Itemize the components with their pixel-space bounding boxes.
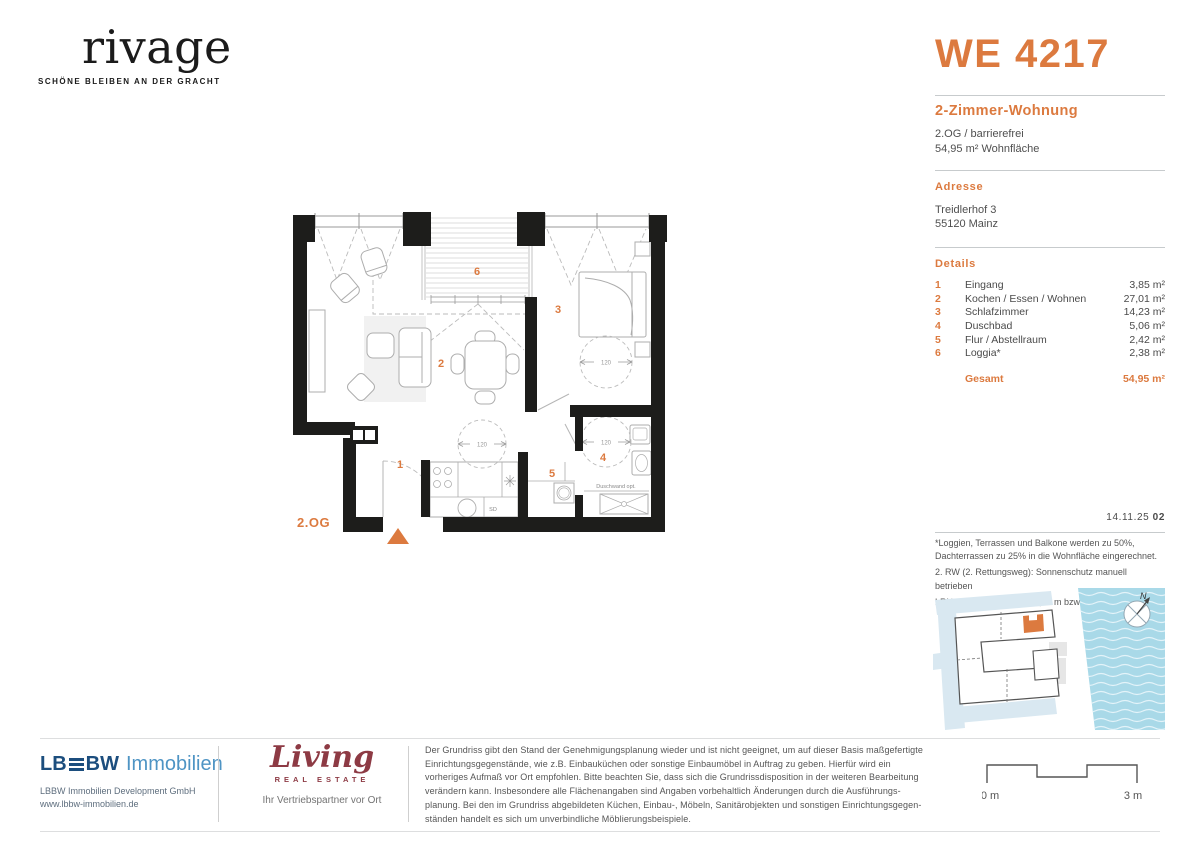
disclaimer-line: verändern kann. Insbesondere alle Fläche… bbox=[425, 785, 915, 799]
room-area: 14,23 m² bbox=[1124, 306, 1165, 320]
site-map: N bbox=[933, 588, 1165, 730]
divider-line bbox=[935, 247, 1165, 248]
scale-bar: 0 m 3 m bbox=[982, 757, 1142, 805]
room-area: 3,85 m² bbox=[1129, 279, 1165, 293]
sideboard bbox=[309, 310, 325, 392]
room-table: 1 Eingang 3,85 m² 2 Kochen / Essen / Woh… bbox=[935, 279, 1165, 361]
room-number: 3 bbox=[935, 306, 965, 320]
plan-room-6: 6 bbox=[474, 266, 480, 278]
room-name: Loggia* bbox=[965, 347, 1129, 361]
room-area: 27,01 m² bbox=[1124, 293, 1165, 307]
plan-room-3: 3 bbox=[555, 304, 561, 316]
divider-line bbox=[935, 95, 1165, 96]
room-number: 2 bbox=[935, 293, 965, 307]
room-name: Kochen / Essen / Wohnen bbox=[965, 293, 1124, 307]
table-row: 6 Loggia* 2,38 m² bbox=[935, 347, 1165, 361]
plan-room-5: 5 bbox=[549, 468, 555, 480]
table-row: 4 Duschbad 5,06 m² bbox=[935, 320, 1165, 334]
address-heading: Adresse bbox=[935, 181, 1165, 193]
room-number: 5 bbox=[935, 334, 965, 348]
total-row: Gesamt 54,95 m² bbox=[935, 373, 1165, 385]
disclaimer-line: ständen handelt es sich um unverbindlich… bbox=[425, 813, 915, 827]
footer-divider bbox=[218, 746, 219, 822]
living-subtitle: REAL ESTATE bbox=[238, 775, 406, 784]
water bbox=[1071, 588, 1165, 730]
plan-room-2: 2 bbox=[438, 358, 444, 370]
lbbw-bars-icon bbox=[69, 756, 84, 772]
kitchen-sink bbox=[458, 499, 476, 517]
turning-circle-dim: 120 bbox=[601, 441, 612, 447]
plan-date: 14.11.25 02 bbox=[935, 512, 1165, 523]
room-name: Duschbad bbox=[965, 320, 1129, 334]
table-row: 5 Flur / Abstellraum 2,42 m² bbox=[935, 334, 1165, 348]
disclaimer-text: Der Grundriss gibt den Stand der Genehmi… bbox=[425, 744, 915, 826]
lbbw-website[interactable]: www.lbbw-immobilien.de bbox=[40, 798, 223, 811]
disclaimer-line: Einrichtungsgegenstände, wie z.B. Einbau… bbox=[425, 758, 915, 772]
disclaimer-line: vorheriges Aufmaß vor Ort empfohlen. Bit… bbox=[425, 771, 915, 785]
washing-machine bbox=[554, 483, 574, 503]
unit-floor: 2.OG / barrierefrei bbox=[935, 127, 1165, 142]
unit-living-area: 54,95 m² Wohnfläche bbox=[935, 142, 1165, 157]
address-city: 55120 Mainz bbox=[935, 217, 1165, 232]
entrance-marker bbox=[387, 528, 409, 544]
table-row: 3 Schlafzimmer 14,23 m² bbox=[935, 306, 1165, 320]
lbbw-lb: LB bbox=[40, 753, 67, 776]
total-label: Gesamt bbox=[965, 373, 1123, 385]
turning-circle-dim: 120 bbox=[601, 361, 612, 367]
plan-floor-label: 2.OG bbox=[297, 515, 330, 530]
room-number: 4 bbox=[935, 320, 965, 334]
table-row: 1 Eingang 3,85 m² bbox=[935, 279, 1165, 293]
footnote-loggia: *Loggien, Terrassen und Balkone werden z… bbox=[935, 537, 1165, 563]
floor-plan: Duschwand opt. SD 120 120 120 1 2 3 4 5 … bbox=[288, 200, 690, 548]
footer-bottom-rule bbox=[40, 831, 1160, 832]
lbbw-company: LBBW Immobilien Development GmbH bbox=[40, 785, 223, 798]
footer-top-rule bbox=[40, 738, 1160, 739]
loggia-railing bbox=[422, 214, 532, 300]
rivage-logo: rivage bbox=[82, 20, 232, 74]
turning-circle-dim: 120 bbox=[477, 443, 488, 449]
living-tagline: Ihr Vertriebspartner vor Ort bbox=[238, 795, 406, 806]
room-number: 1 bbox=[935, 279, 965, 293]
shower bbox=[600, 494, 648, 514]
room-area: 5,06 m² bbox=[1129, 320, 1165, 334]
room-area: 2,42 m² bbox=[1129, 334, 1165, 348]
room-name: Schlafzimmer bbox=[965, 306, 1124, 320]
lounge-chair bbox=[360, 246, 389, 278]
floorplan-sheet: rivage SCHÖNE BLEIBEN AN DER GRACHT WE 4… bbox=[0, 0, 1200, 848]
lbbw-bw: BW bbox=[86, 753, 119, 776]
unit-type: 2-Zimmer-Wohnung bbox=[935, 103, 1165, 119]
plan-room-1: 1 bbox=[397, 459, 403, 471]
bed bbox=[579, 272, 646, 337]
living-logo-block: Living REAL ESTATE Ihr Vertriebspartner … bbox=[238, 741, 406, 806]
address-street: Treidlerhof 3 bbox=[935, 203, 1165, 218]
details-heading: Details bbox=[935, 258, 1165, 270]
unit-code: WE 4217 bbox=[935, 32, 1110, 77]
scale-end-label: 3 m bbox=[1124, 790, 1142, 802]
nightstand bbox=[635, 342, 650, 357]
unit-marker-notch bbox=[1029, 615, 1037, 621]
rivage-tagline: SCHÖNE BLEIBEN AN DER GRACHT bbox=[38, 77, 221, 86]
building-block bbox=[1033, 649, 1059, 680]
divider-line bbox=[935, 532, 1165, 533]
north-label: N bbox=[1140, 591, 1147, 601]
lbbw-immobilien: Immobilien bbox=[126, 753, 223, 776]
total-area: 54,95 m² bbox=[1123, 373, 1165, 385]
room-area: 2,38 m² bbox=[1129, 347, 1165, 361]
sofa bbox=[399, 328, 431, 387]
table-row: 2 Kochen / Essen / Wohnen 27,01 m² bbox=[935, 293, 1165, 307]
armchair bbox=[367, 333, 394, 358]
plan-room-4: 4 bbox=[600, 452, 607, 464]
disclaimer-line: Der Grundriss gibt den Stand der Genehmi… bbox=[425, 744, 915, 758]
room-name: Flur / Abstellraum bbox=[965, 334, 1129, 348]
dining-table bbox=[465, 341, 506, 389]
scale-start-label: 0 m bbox=[982, 790, 999, 802]
footer-divider bbox=[408, 746, 409, 822]
lounge-chair bbox=[328, 271, 362, 305]
lbbw-logo: LB BW Immobilien bbox=[40, 753, 223, 776]
bath-sink bbox=[630, 425, 650, 444]
lbbw-logo-block: LB BW Immobilien LBBW Immobilien Develop… bbox=[40, 753, 223, 811]
shower-note: Duschwand opt. bbox=[596, 484, 636, 490]
revision-number: 02 bbox=[1153, 512, 1165, 523]
kitchen-counter bbox=[430, 462, 518, 517]
divider-line bbox=[935, 170, 1165, 171]
toilet bbox=[632, 451, 651, 475]
nightstand bbox=[635, 242, 650, 256]
room-number: 6 bbox=[935, 347, 965, 361]
living-logo: Living bbox=[238, 741, 406, 775]
dishwasher-label: SD bbox=[489, 507, 497, 513]
loggia-deck bbox=[426, 218, 528, 297]
disclaimer-line: planung. Bei den im Grundriss abgebildet… bbox=[425, 799, 915, 813]
date-value: 14.11.25 bbox=[1106, 512, 1149, 523]
room-name: Eingang bbox=[965, 279, 1129, 293]
